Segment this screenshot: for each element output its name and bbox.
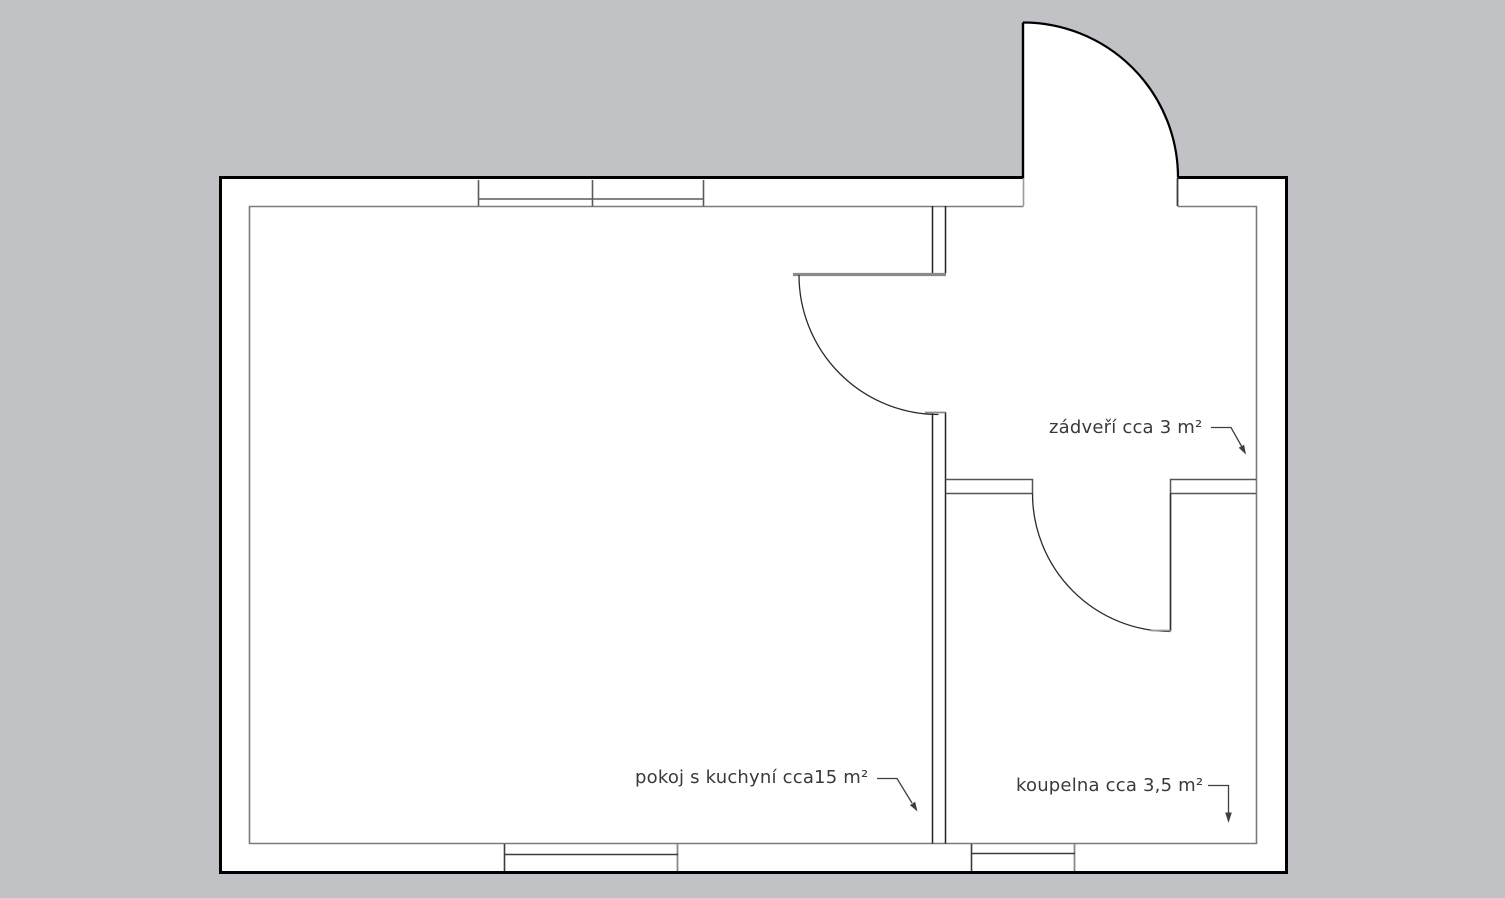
- room-label-zadveri: zádveří cca 3 m²: [1049, 417, 1202, 438]
- room-label-koupelna: koupelna cca 3,5 m²: [1016, 775, 1203, 796]
- floorplan-drawing: [0, 0, 1505, 898]
- entrance-door: [1023, 23, 1178, 179]
- floorplan-canvas: zádveří cca 3 m² pokoj s kuchyní cca15 m…: [0, 0, 1505, 898]
- room-label-pokoj-s-kuchyni: pokoj s kuchyní cca15 m²: [635, 767, 868, 788]
